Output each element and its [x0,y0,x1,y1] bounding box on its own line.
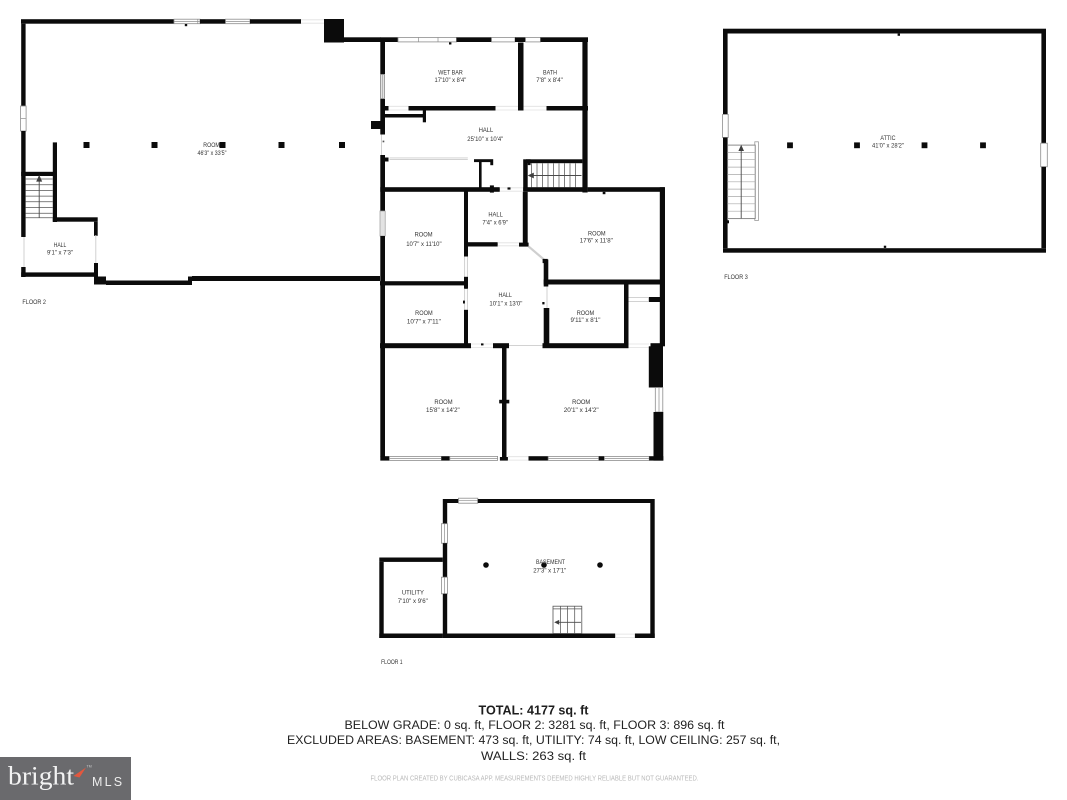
svg-text:WALLS: 263 sq. ft: WALLS: 263 sq. ft [481,749,587,763]
svg-text:WET BAR: WET BAR [438,70,463,77]
svg-text:10'7" x 7'11": 10'7" x 7'11" [407,319,442,326]
svg-text:FLOOR 2: FLOOR 2 [22,299,46,306]
svg-text:ROOM: ROOM [415,310,433,317]
svg-text:17'6" x 11'8": 17'6" x 11'8" [580,238,614,245]
svg-text:BELOW GRADE: 0 sq. ft, FLOOR 2: BELOW GRADE: 0 sq. ft, FLOOR 2: 3281 sq.… [345,718,726,732]
svg-text:FLOOR 3: FLOOR 3 [724,274,748,281]
svg-text:17'10" x 8'4": 17'10" x 8'4" [435,77,467,84]
svg-text:27'3" x 17'1": 27'3" x 17'1" [533,567,567,574]
svg-text:HALL: HALL [54,242,67,249]
svg-text:7'4" x 6'9": 7'4" x 6'9" [482,220,508,227]
svg-text:15'8" x 14'2": 15'8" x 14'2" [426,407,460,414]
svg-text:EXCLUDED AREAS: BASEMENT: 473: EXCLUDED AREAS: BASEMENT: 473 sq. ft, UT… [287,733,780,747]
svg-text:41'0" x 28'2": 41'0" x 28'2" [872,143,905,150]
svg-text:ROOM: ROOM [203,142,220,149]
svg-text:10'7" x 11'10": 10'7" x 11'10" [406,241,442,248]
svg-text:FLOOR 1: FLOOR 1 [381,659,403,666]
svg-text:ROOM: ROOM [434,399,452,406]
svg-text:TM: TM [87,765,92,769]
svg-text:FLOOR PLAN CREATED BY CUBICASA: FLOOR PLAN CREATED BY CUBICASA APP. MEAS… [371,776,699,783]
svg-text:ROOM: ROOM [415,232,433,239]
svg-text:9'1" x 7'3": 9'1" x 7'3" [47,250,74,257]
svg-text:HALL: HALL [488,211,503,218]
svg-text:7'8" x 8'4": 7'8" x 8'4" [536,77,563,84]
svg-text:MLS: MLS [92,775,124,789]
svg-text:9'11" x 8'1": 9'11" x 8'1" [571,317,602,324]
svg-text:20'1" x 14'2": 20'1" x 14'2" [564,407,600,414]
svg-text:25'10" x 10'4": 25'10" x 10'4" [467,136,504,143]
svg-text:BASEMENT: BASEMENT [536,559,565,566]
svg-text:UTILITY: UTILITY [402,590,424,597]
svg-text:bright: bright [8,762,75,791]
svg-text:7'10" x 9'6": 7'10" x 9'6" [398,598,429,605]
svg-text:TOTAL: 4177 sq. ft: TOTAL: 4177 sq. ft [479,704,590,718]
svg-text:ROOM: ROOM [572,399,590,406]
svg-text:BATH: BATH [543,70,557,77]
svg-text:HALL: HALL [498,292,512,299]
svg-text:ROOM: ROOM [577,310,595,317]
svg-text:ROOM: ROOM [588,231,606,238]
svg-text:46'3" x 33'5": 46'3" x 33'5" [198,150,227,157]
svg-text:HALL: HALL [479,127,494,134]
svg-text:ATTIC: ATTIC [880,135,895,142]
svg-text:10'1" x 13'0": 10'1" x 13'0" [489,301,523,308]
